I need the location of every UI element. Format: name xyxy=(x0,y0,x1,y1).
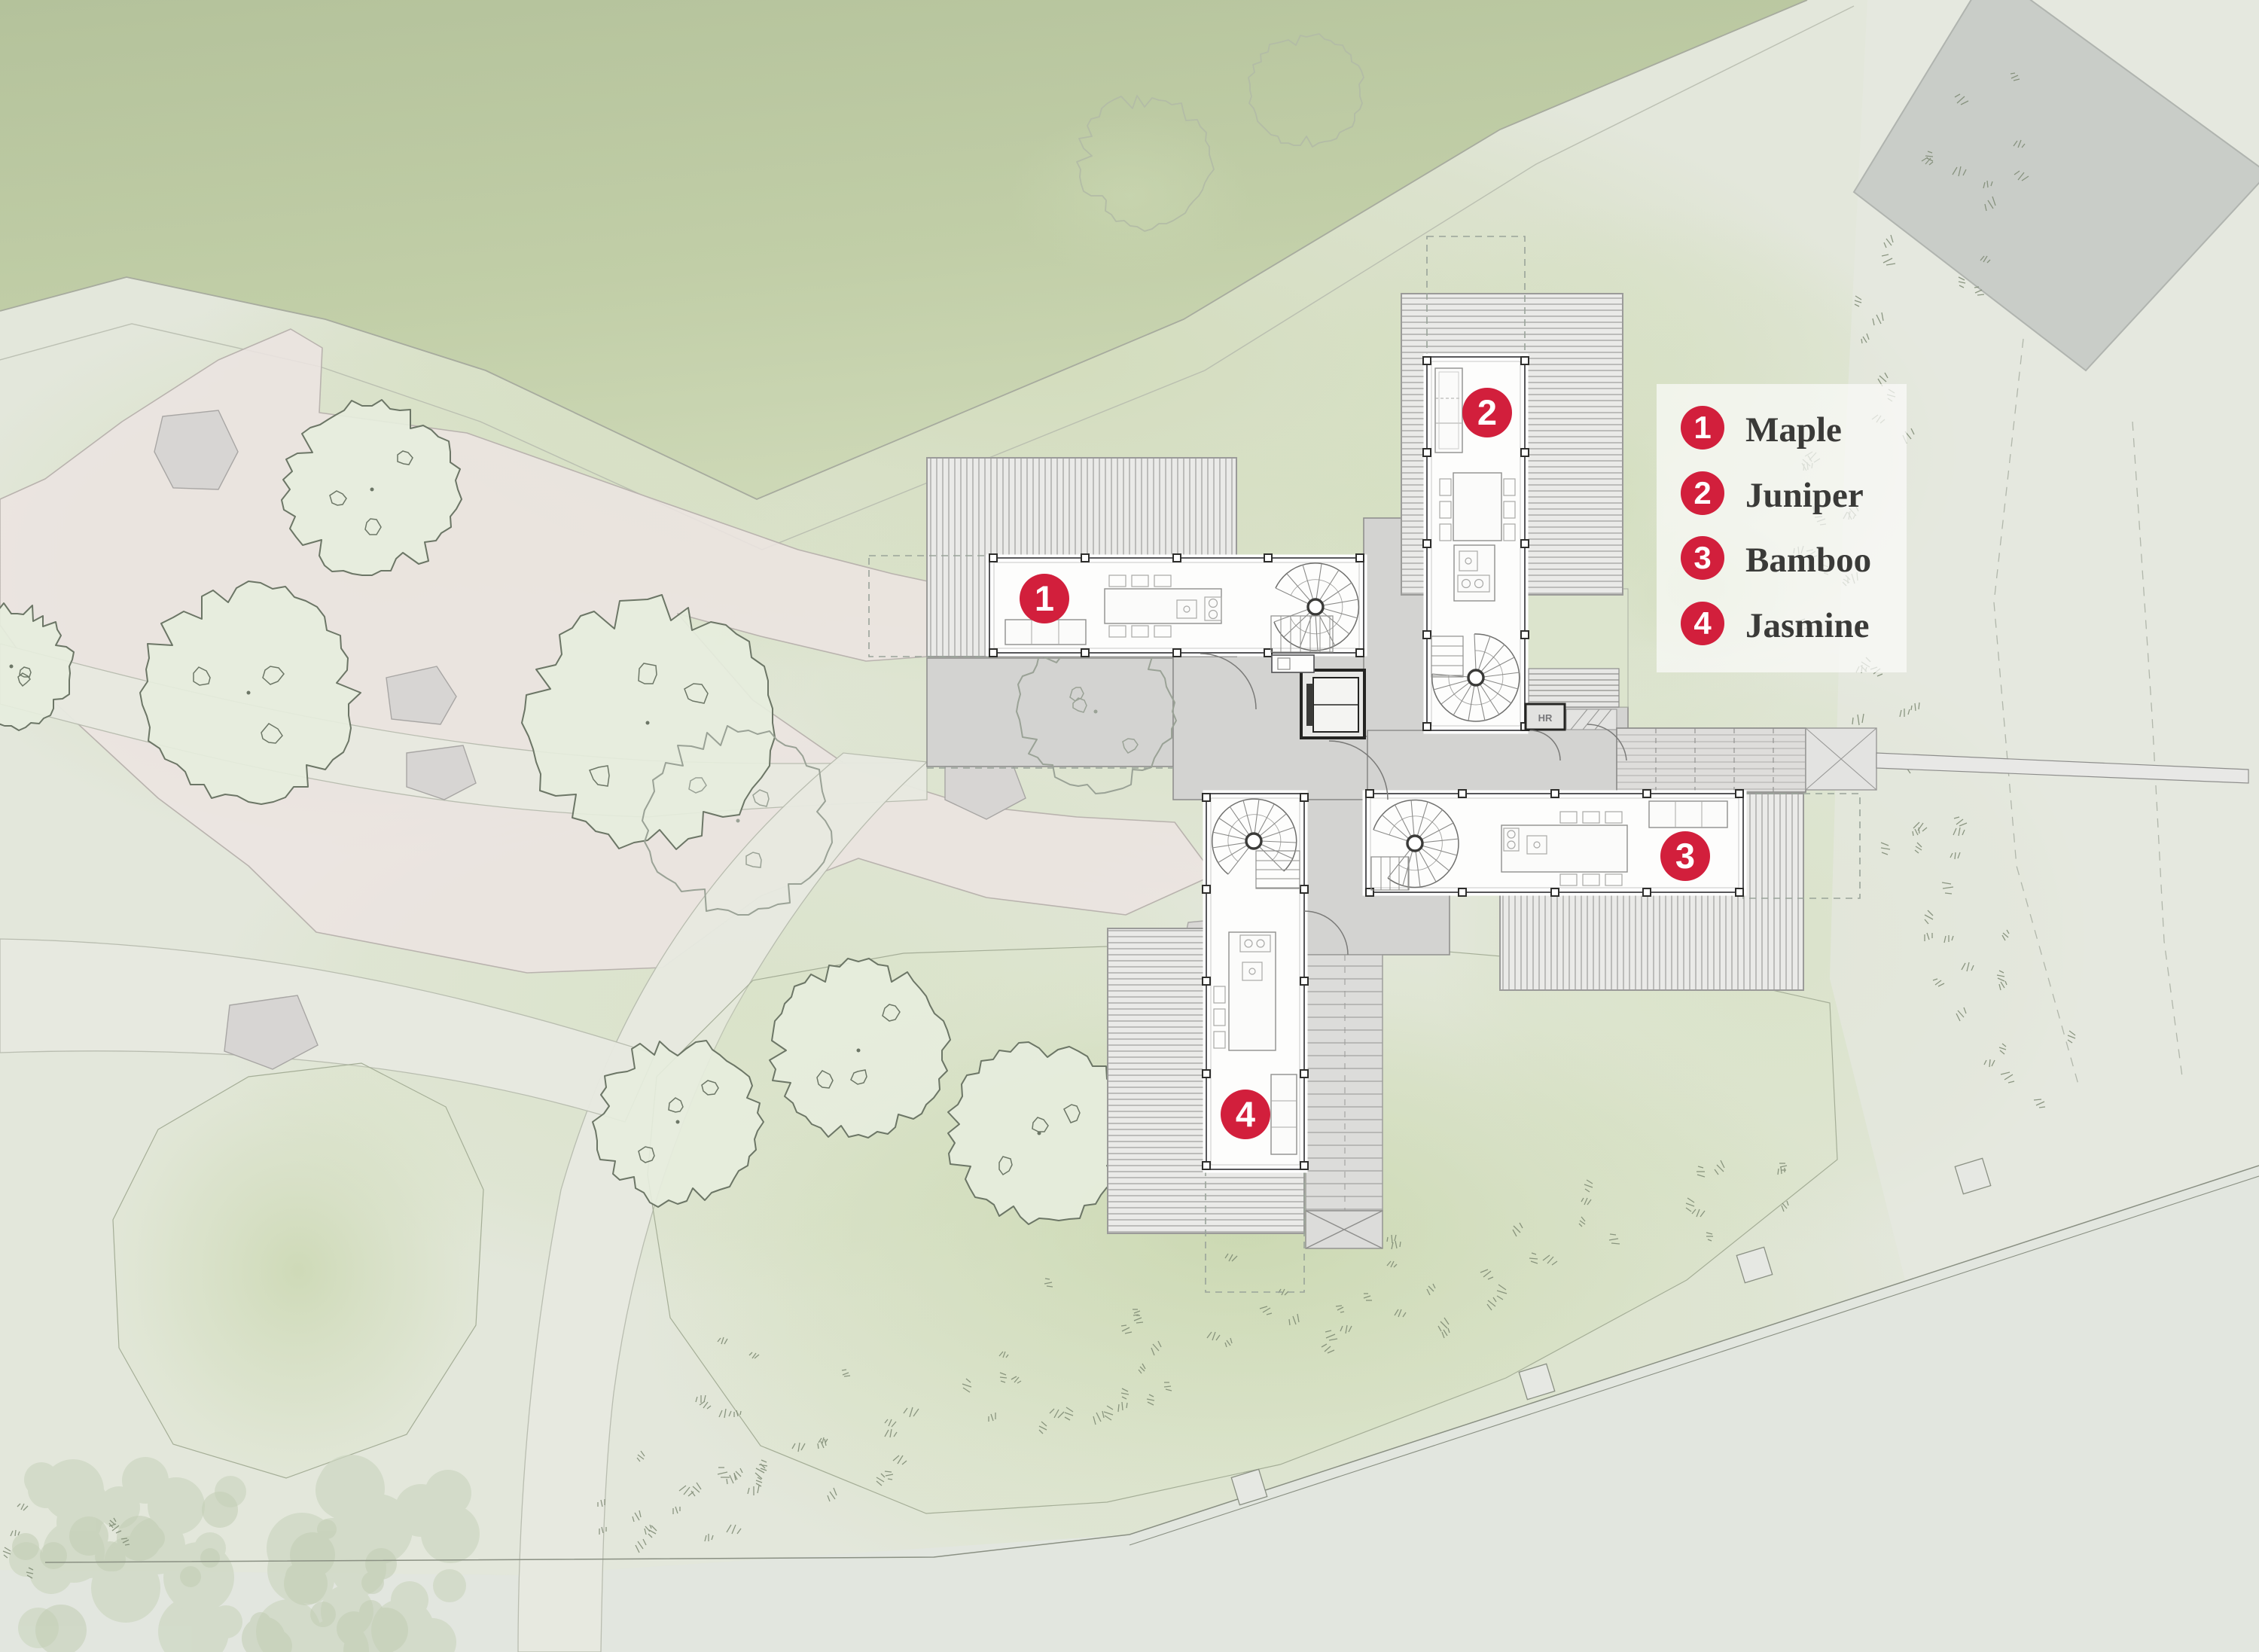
svg-text:4: 4 xyxy=(1236,1094,1255,1134)
svg-text:Bamboo: Bamboo xyxy=(1745,541,1871,580)
svg-text:3: 3 xyxy=(1675,836,1695,876)
svg-text:1: 1 xyxy=(1035,578,1054,618)
svg-text:HR: HR xyxy=(1538,712,1553,724)
svg-text:Jasmine: Jasmine xyxy=(1745,606,1870,645)
svg-text:2: 2 xyxy=(1477,392,1497,432)
svg-text:1: 1 xyxy=(1693,410,1711,445)
svg-text:2: 2 xyxy=(1693,475,1711,511)
svg-text:3: 3 xyxy=(1693,540,1711,575)
svg-text:4: 4 xyxy=(1693,605,1712,641)
svg-text:Maple: Maple xyxy=(1745,410,1842,450)
svg-text:Juniper: Juniper xyxy=(1745,476,1864,515)
